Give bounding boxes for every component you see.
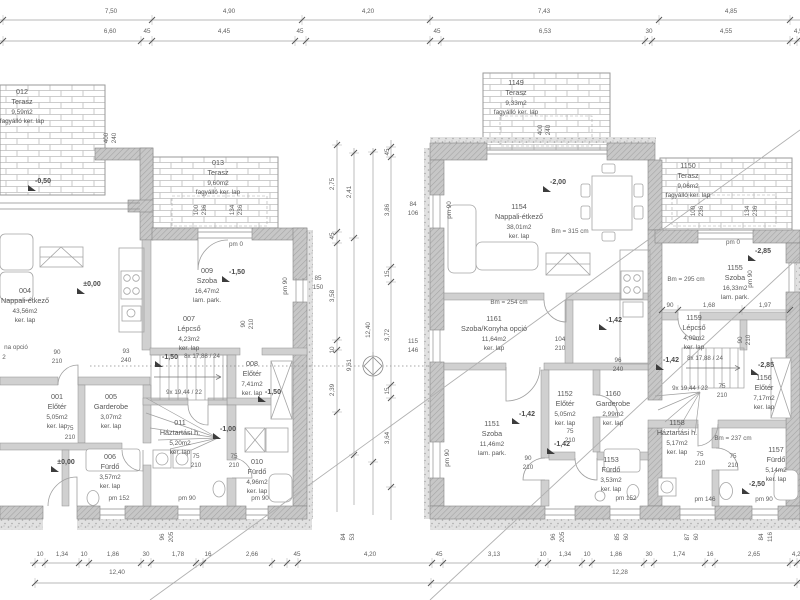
room-floor: ker. lap bbox=[1, 316, 49, 325]
dim-text: 4,55 bbox=[794, 29, 800, 35]
dim-text: 4,90 bbox=[223, 9, 235, 15]
room-name: Szoba bbox=[193, 276, 221, 286]
annotation-text: 210 bbox=[65, 435, 76, 441]
annotation-text: 210 bbox=[191, 463, 202, 469]
annotation-text: 53 bbox=[350, 533, 356, 540]
annotation-text: 87 bbox=[685, 533, 691, 540]
dim-total: 12,40 bbox=[109, 570, 125, 576]
dim-text: 45 bbox=[433, 29, 440, 35]
dim-text: 2,65 bbox=[748, 552, 760, 558]
level-flag-icon bbox=[213, 433, 221, 439]
room-floor: fagyálló ker. lap bbox=[196, 188, 240, 197]
annotation-text: pm 152 bbox=[615, 496, 636, 502]
room-name: Fürdő bbox=[246, 467, 267, 477]
level-flag-icon bbox=[28, 185, 36, 191]
level-flag-icon bbox=[742, 488, 750, 494]
room-id: 1159 bbox=[682, 313, 705, 323]
level-flag-icon bbox=[155, 361, 163, 367]
annotation-text: 90 bbox=[241, 320, 247, 327]
room-id: 011 bbox=[160, 418, 200, 428]
annotation-text: 93 bbox=[122, 349, 129, 355]
room-area: 7,41m2 bbox=[241, 380, 262, 389]
room-name: Szoba/Konyha opció bbox=[461, 324, 527, 334]
level-flag-icon bbox=[77, 288, 85, 294]
annotation-text: 75 bbox=[66, 426, 73, 432]
level-flag-icon bbox=[222, 276, 230, 282]
room-name: Terasz bbox=[196, 168, 240, 178]
room-name: Terasz bbox=[0, 97, 44, 107]
annotation-text: 90 bbox=[666, 303, 673, 309]
level-mark: ±0,00 bbox=[57, 459, 74, 466]
room-label-005: 005Garderobe3,07m2ker. lap bbox=[94, 392, 128, 431]
room-name: Lépcső bbox=[682, 323, 705, 333]
level-flag-icon bbox=[258, 396, 266, 402]
level-flag-icon bbox=[656, 364, 664, 370]
annotation-text: 96 bbox=[160, 533, 166, 540]
dim-text-vertical: 9,61 bbox=[347, 359, 353, 371]
annotation-text: 210 bbox=[565, 438, 576, 444]
dim-text: 30 bbox=[142, 552, 149, 558]
room-area: 2,99m2 bbox=[596, 410, 630, 419]
dim-text-vertical: 3,86 bbox=[385, 204, 391, 216]
room-id: 1152 bbox=[554, 389, 575, 399]
room-area: 4,23m2 bbox=[177, 335, 200, 344]
dim-text: 45 bbox=[296, 29, 303, 35]
room-label-013: 013Terasz9,60m2fagyálló ker. lap bbox=[196, 158, 240, 197]
room-floor: ker. lap bbox=[765, 475, 786, 484]
room-id: 006 bbox=[99, 452, 120, 462]
annotation-text: 84 bbox=[759, 533, 765, 540]
level-mark: -1,00 bbox=[220, 426, 236, 433]
room-floor: ker. lap bbox=[682, 343, 705, 352]
annotation-text: Bm = 295 cm bbox=[667, 277, 704, 283]
floor-plan-linework bbox=[0, 0, 800, 600]
annotation-text: Bm = 237 cm bbox=[714, 436, 751, 442]
dim-text-vertical: 15 bbox=[385, 270, 391, 277]
dim-text: 1,78 bbox=[172, 552, 184, 558]
annotation-text: 106 bbox=[408, 211, 419, 217]
annotation-text: 8x 17,88 / 24 bbox=[184, 354, 220, 360]
annotation-text: 240 bbox=[546, 125, 552, 136]
room-name: Előtér bbox=[46, 402, 67, 412]
annotation-text: 9x 19,44 / 22 bbox=[166, 390, 202, 396]
annotation-text: 236 bbox=[699, 206, 705, 217]
dim-text: 4,20 bbox=[362, 9, 374, 15]
level-mark: -2,50 bbox=[749, 481, 765, 488]
level-mark: -1,42 bbox=[606, 317, 622, 324]
level-mark: -1,42 bbox=[519, 411, 535, 418]
room-name: Terasz bbox=[494, 88, 538, 98]
room-area: 9,60m2 bbox=[196, 179, 240, 188]
room-label-1150: 1150Terasz9,06m2fagyálló ker. lap bbox=[666, 161, 710, 200]
annotation-text: na opció bbox=[4, 345, 28, 351]
room-name: Szoba bbox=[478, 429, 506, 439]
room-floor: ker. lap bbox=[596, 419, 630, 428]
room-floor: ker. lap bbox=[461, 344, 527, 353]
room-name: Terasz bbox=[666, 171, 710, 181]
room-area: 5,20m2 bbox=[160, 439, 200, 448]
room-area: 43,56m2 bbox=[1, 307, 49, 316]
dim-text-vertical: 3,58 bbox=[330, 290, 336, 302]
annotation-text: pm 146 bbox=[694, 497, 715, 503]
dim-text: 4,20 bbox=[792, 552, 800, 558]
dim-text: 7,50 bbox=[105, 9, 117, 15]
dim-text-vertical: 12,40 bbox=[366, 322, 372, 338]
dim-text: 7,43 bbox=[538, 9, 550, 15]
room-area: 3,57m2 bbox=[99, 473, 120, 482]
room-id: 1151 bbox=[478, 419, 506, 429]
dim-text-vertical: 15 bbox=[385, 387, 391, 394]
room-label-1158: 1158Háztartási h.5,17m2ker. lap bbox=[657, 418, 697, 457]
dim-text-vertical: 3,64 bbox=[385, 432, 391, 444]
room-floor: ker. lap bbox=[99, 482, 120, 491]
room-floor: lam. park. bbox=[478, 449, 506, 458]
dim-text: 1,34 bbox=[559, 552, 571, 558]
room-floor: fagyálló ker. lap bbox=[494, 108, 538, 117]
room-name: Garderobe bbox=[94, 402, 128, 412]
dim-text-vertical: 2,75 bbox=[330, 178, 336, 190]
room-label-008: 008Előtér7,41m2ker. lap bbox=[241, 359, 262, 398]
room-name: Háztartási h. bbox=[160, 428, 200, 438]
room-name: Előtér bbox=[241, 369, 262, 379]
room-floor: ker. lap bbox=[94, 422, 128, 431]
room-label-007: 007Lépcső4,23m2ker. lap bbox=[177, 314, 200, 353]
annotation-text: 134 bbox=[230, 205, 236, 216]
room-label-006: 006Fürdő3,57m2ker. lap bbox=[99, 452, 120, 491]
annotation-text: 90 bbox=[524, 456, 531, 462]
room-label-009: 009Szoba16,47m2lam. park. bbox=[193, 266, 221, 305]
annotation-text: 240 bbox=[613, 367, 624, 373]
level-mark: -2,00 bbox=[550, 179, 566, 186]
level-flag-icon bbox=[51, 466, 59, 472]
dim-text: 10 bbox=[539, 552, 546, 558]
room-label-1149: 1149Terasz9,33m2fagyálló ker. lap bbox=[494, 78, 538, 117]
dim-text: 6,53 bbox=[539, 29, 551, 35]
annotation-text: 146 bbox=[408, 348, 419, 354]
annotation-text: pm 90 bbox=[447, 201, 453, 219]
annotation-text: 150 bbox=[313, 285, 324, 291]
room-area: 4,96m2 bbox=[246, 478, 267, 487]
room-name: Előtér bbox=[554, 399, 575, 409]
room-label-1154: 1154Nappali-étkező38,01m2ker. lap bbox=[495, 202, 543, 241]
room-id: 1157 bbox=[765, 445, 786, 455]
annotation-text: 75 bbox=[192, 454, 199, 460]
room-floor: ker. lap bbox=[46, 422, 67, 431]
room-label-1159: 1159Lépcső4,09m2ker. lap bbox=[682, 313, 705, 352]
dim-text: 10 bbox=[36, 552, 43, 558]
annotation-text: pm 90 bbox=[755, 497, 773, 503]
room-label-012: 012Terasz9,59m2fagyálló ker. lap bbox=[0, 87, 44, 126]
dim-text: 1,86 bbox=[610, 552, 622, 558]
annotation-text: 210 bbox=[229, 463, 240, 469]
level-mark: -2,85 bbox=[758, 362, 774, 369]
room-floor: lam. park. bbox=[193, 296, 221, 305]
dim-text: 6,60 bbox=[104, 29, 116, 35]
dim-text: 1,34 bbox=[56, 552, 68, 558]
annotation-text: Bm = 254 cm bbox=[490, 300, 527, 306]
annotation-text: 210 bbox=[555, 346, 566, 352]
room-label-1151: 1151Szoba11,46m2lam. park. bbox=[478, 419, 506, 458]
annotation-text: 400 bbox=[104, 133, 110, 144]
level-flag-icon bbox=[547, 448, 555, 454]
room-area: 38,01m2 bbox=[495, 223, 543, 232]
dim-text: 45 bbox=[435, 552, 442, 558]
annotation-text: 115 bbox=[408, 339, 418, 345]
room-id: 1149 bbox=[494, 78, 538, 88]
room-id: 1160 bbox=[596, 389, 630, 399]
level-mark: -1,42 bbox=[663, 357, 679, 364]
annotation-text: 1,97 bbox=[759, 303, 771, 309]
dim-text: 10 bbox=[80, 552, 87, 558]
level-flag-icon bbox=[748, 255, 756, 261]
room-area: 9,06m2 bbox=[666, 182, 710, 191]
room-name: Fürdő bbox=[99, 462, 120, 472]
room-name: Nappali-étkező bbox=[495, 212, 543, 222]
annotation-text: 205 bbox=[560, 532, 566, 543]
annotation-text: 75 bbox=[729, 454, 736, 460]
dim-text-vertical: 2,39 bbox=[330, 384, 336, 396]
room-floor: lam. park. bbox=[721, 293, 749, 302]
annotation-text: 134 bbox=[745, 206, 751, 217]
annotation-text: 240 bbox=[121, 358, 132, 364]
dim-text: 4,85 bbox=[725, 9, 737, 15]
annotation-text: pm 90 bbox=[283, 277, 289, 295]
room-floor: ker. lap bbox=[600, 485, 621, 494]
annotation-text: 210 bbox=[695, 461, 706, 467]
room-label-011: 011Háztartási h.5,20m2ker. lap bbox=[160, 418, 200, 457]
dim-text-vertical: 45 bbox=[385, 148, 391, 155]
room-area: 5,05m2 bbox=[46, 413, 67, 422]
annotation-text: pm 90 bbox=[178, 496, 196, 502]
level-flag-icon bbox=[543, 186, 551, 192]
room-label-001: 001Előtér5,05m2ker. lap bbox=[46, 392, 67, 431]
room-id: 1154 bbox=[495, 202, 543, 212]
dim-text: 30 bbox=[645, 29, 652, 35]
room-id: 008 bbox=[241, 359, 262, 369]
room-floor: fagyálló ker. lap bbox=[0, 117, 44, 126]
annotation-text: 236 bbox=[753, 206, 759, 217]
room-floor: fagyálló ker. lap bbox=[666, 191, 710, 200]
room-id: 013 bbox=[196, 158, 240, 168]
dim-text-vertical: 45 bbox=[330, 232, 336, 239]
annotation-text: 75 bbox=[696, 452, 703, 458]
dim-total: 12,28 bbox=[612, 570, 628, 576]
room-label-004: 004Nappali-étkező43,56m2ker. lap bbox=[1, 286, 49, 325]
room-floor: ker. lap bbox=[495, 232, 543, 241]
level-flag-icon bbox=[599, 324, 607, 330]
level-mark: -2,85 bbox=[755, 248, 771, 255]
room-name: Lépcső bbox=[177, 324, 200, 334]
room-id: 1161 bbox=[461, 314, 527, 324]
room-area: 11,64m2 bbox=[461, 335, 527, 344]
annotation-text: pm 90 bbox=[251, 496, 269, 502]
room-area: 11,46m2 bbox=[478, 440, 506, 449]
annotation-text: 90 bbox=[53, 350, 60, 356]
annotation-text: 90 bbox=[738, 336, 744, 343]
room-area: 5,17m2 bbox=[657, 439, 697, 448]
level-flag-icon bbox=[512, 418, 520, 424]
annotation-text: 116 bbox=[768, 532, 774, 542]
annotation-text: 210 bbox=[523, 465, 534, 471]
annotation-text: pm 0 bbox=[726, 240, 740, 246]
annotation-text: 1,68 bbox=[703, 303, 715, 309]
room-id: 007 bbox=[177, 314, 200, 324]
room-label-1161: 1161Szoba/Konyha opció11,64m2ker. lap bbox=[461, 314, 527, 353]
room-id: 001 bbox=[46, 392, 67, 402]
annotation-text: 400 bbox=[538, 125, 544, 136]
annotation-text: 75 bbox=[230, 454, 237, 460]
dim-text: 16 bbox=[204, 552, 211, 558]
room-name: Háztartási h. bbox=[657, 428, 697, 438]
annotation-text: 240 bbox=[112, 133, 118, 144]
room-label-1155: 1155Szoba16,33m2lam. park. bbox=[721, 263, 749, 302]
dim-text: 10 bbox=[583, 552, 590, 558]
annotation-text: 96 bbox=[614, 358, 621, 364]
level-mark: -1,50 bbox=[162, 354, 178, 361]
room-floor: ker. lap bbox=[657, 448, 697, 457]
annotation-text: pm 0 bbox=[229, 242, 243, 248]
room-label-010: 010Fürdő4,96m2ker. lap bbox=[246, 457, 267, 496]
room-id: 1158 bbox=[657, 418, 697, 428]
annotation-text: 205 bbox=[169, 532, 175, 543]
room-floor: ker. lap bbox=[753, 403, 774, 412]
room-label-1153: 1153Fürdő3,53m2ker. lap bbox=[600, 455, 621, 494]
level-mark: -1,50 bbox=[265, 389, 281, 396]
room-id: 1150 bbox=[666, 161, 710, 171]
annotation-text: 210 bbox=[717, 393, 728, 399]
floor-plan-sheet: 012Terasz9,59m2fagyálló ker. lap013Teras… bbox=[0, 0, 800, 600]
room-area: 9,33m2 bbox=[494, 99, 538, 108]
room-id: 1153 bbox=[600, 455, 621, 465]
room-id: 012 bbox=[0, 87, 44, 97]
annotation-text: 9x 19,44 / 22 bbox=[672, 386, 708, 392]
dim-text-vertical: 10 bbox=[330, 346, 336, 353]
dim-text: 1,74 bbox=[673, 552, 685, 558]
dim-text: 1,86 bbox=[107, 552, 119, 558]
level-mark: -1,50 bbox=[229, 269, 245, 276]
room-label-1152: 1152Előtér5,05m2ker. lap bbox=[554, 389, 575, 428]
annotation-text: 60 bbox=[694, 533, 700, 540]
room-name: Fürdő bbox=[765, 455, 786, 465]
room-area: 9,59m2 bbox=[0, 108, 44, 117]
room-area: 4,09m2 bbox=[682, 334, 705, 343]
room-area: 3,07m2 bbox=[94, 413, 128, 422]
annotation-text: 60 bbox=[624, 533, 630, 540]
annotation-text: 100 bbox=[691, 206, 697, 217]
annotation-text: 85 bbox=[615, 533, 621, 540]
dim-text-vertical: 2,41 bbox=[347, 186, 353, 198]
level-mark: -0,50 bbox=[35, 178, 51, 185]
room-id: 004 bbox=[1, 286, 49, 296]
annotation-text: pm 152 bbox=[108, 496, 129, 502]
annotation-text: 85 bbox=[314, 276, 321, 282]
dim-text: 4,55 bbox=[720, 29, 732, 35]
annotation-text: Bm = 315 cm bbox=[551, 229, 588, 235]
room-name: Nappali-étkező bbox=[1, 296, 49, 306]
room-area: 7,17m2 bbox=[753, 394, 774, 403]
annotation-text: 96 bbox=[551, 533, 557, 540]
room-area: 5,14m2 bbox=[765, 466, 786, 475]
room-name: Fürdő bbox=[600, 465, 621, 475]
room-id: 005 bbox=[94, 392, 128, 402]
dim-text-vertical: 3,72 bbox=[385, 329, 391, 341]
room-name: Előtér bbox=[753, 383, 774, 393]
annotation-text: 84 bbox=[341, 533, 347, 540]
dim-text: 16 bbox=[706, 552, 713, 558]
annotation-text: 104 bbox=[555, 337, 566, 343]
level-mark: ±0,00 bbox=[83, 281, 100, 288]
annotation-text: 75 bbox=[566, 429, 573, 435]
annotation-text: 210 bbox=[52, 359, 63, 365]
dim-text: 4,45 bbox=[218, 29, 230, 35]
annotation-text: 100 bbox=[194, 205, 200, 216]
annotation-text: 84 bbox=[409, 202, 416, 208]
annotation-text: 8x 17,88 / 24 bbox=[687, 356, 723, 362]
annotation-text: 210 bbox=[728, 463, 739, 469]
room-id: 010 bbox=[246, 457, 267, 467]
room-label-1156: 1156Előtér7,17m2ker. lap bbox=[753, 373, 774, 412]
dim-text: 45 bbox=[293, 552, 300, 558]
annotation-text: 236 bbox=[202, 205, 208, 216]
annotation-text: 75 bbox=[718, 384, 725, 390]
room-area: 5,05m2 bbox=[554, 410, 575, 419]
annotation-text: 210 bbox=[746, 335, 752, 346]
room-name: Garderobe bbox=[596, 399, 630, 409]
room-label-1160: 1160Garderobe2,99m2ker. lap bbox=[596, 389, 630, 428]
room-id: 009 bbox=[193, 266, 221, 276]
level-flag-icon bbox=[751, 369, 759, 375]
dim-text: 30 bbox=[645, 552, 652, 558]
room-area: 16,47m2 bbox=[193, 287, 221, 296]
room-id: 1155 bbox=[721, 263, 749, 273]
annotation-text: 236 bbox=[238, 205, 244, 216]
annotation-text: 210 bbox=[249, 319, 255, 330]
room-label-1157: 1157Fürdő5,14m2ker. lap bbox=[765, 445, 786, 484]
dim-text: 3,13 bbox=[488, 552, 500, 558]
dim-text: 2,66 bbox=[246, 552, 258, 558]
annotation-text: 2 bbox=[2, 355, 6, 361]
room-area: 3,53m2 bbox=[600, 476, 621, 485]
annotation-text: pm 90 bbox=[748, 270, 754, 288]
dim-text: 45 bbox=[143, 29, 150, 35]
annotation-text: pm 90 bbox=[445, 449, 451, 467]
room-area: 16,33m2 bbox=[721, 284, 749, 293]
dim-text: 4,20 bbox=[364, 552, 376, 558]
room-name: Szoba bbox=[721, 273, 749, 283]
